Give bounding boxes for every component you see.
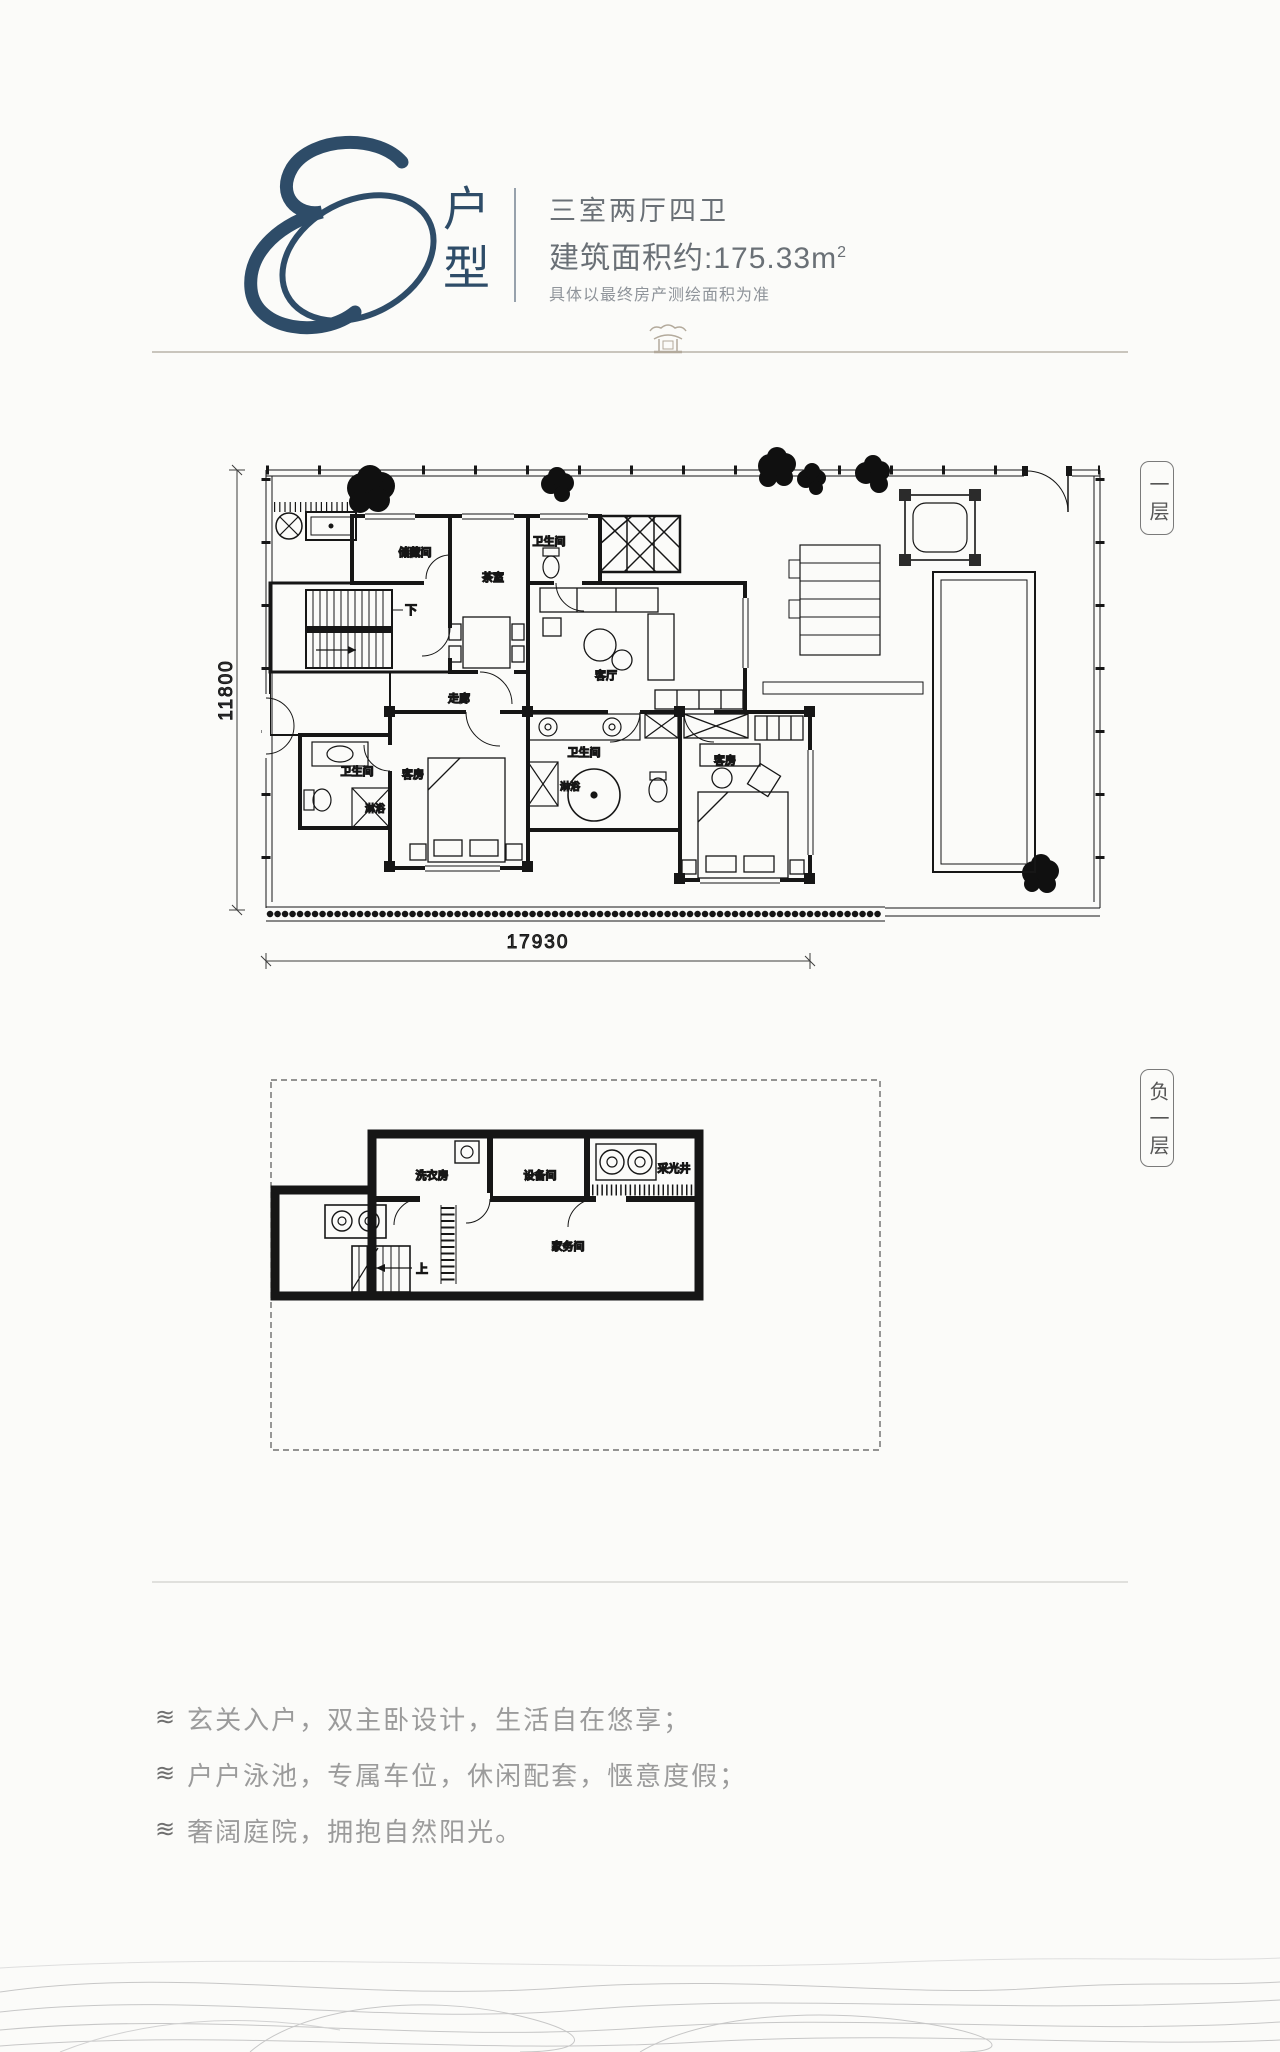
floor1-walls: [270, 516, 810, 880]
dim-width-label: 17930: [507, 932, 570, 953]
floor1-dining-set: [449, 617, 524, 668]
floor1-deck: [600, 516, 680, 572]
basement-plan: 洗衣房 设备间 采光井 家务间 上: [271, 1080, 880, 1450]
floor1-topleft-service: [274, 507, 356, 540]
room-label-bath-left: 卫生间: [341, 764, 374, 778]
feature-item: ≋ 户户泳池，专属车位，休闲配套，惬意度假；: [155, 1758, 747, 1790]
floor1-plan: 11800 17930 储藏间 茶室 卫生间 客厅 走廊 下 卫生间 淋浴 客房…: [216, 447, 1100, 969]
room-label-shower-master: 淋浴: [560, 780, 581, 793]
floor1-bath-left-fixtures: [304, 742, 390, 828]
room-label-guest-left: 客房: [401, 767, 424, 781]
type-label: 户型: [428, 184, 497, 316]
unit-layout-text: 三室两厅四卫: [549, 189, 729, 228]
dim-height-label: 11800: [216, 659, 237, 720]
floor1-master-bath-fixtures: [528, 714, 678, 821]
room-label-storage: 储藏间: [399, 545, 432, 559]
floor1-living-furniture: [540, 588, 743, 709]
floor1-bath-top-fixtures: [543, 548, 559, 578]
room-label-living: 客厅: [594, 668, 617, 682]
wave-bullet-icon: ≋: [155, 1706, 175, 1730]
room-label-corridor: 走廊: [447, 691, 470, 705]
area-superscript: 2: [837, 244, 847, 261]
room-label-up: 上: [416, 1261, 428, 1276]
room-label-lightwell: 采光井: [657, 1161, 691, 1175]
room-label-bath-top: 卫生间: [533, 534, 566, 548]
basement-tag: 负一层: [1140, 1069, 1174, 1167]
bottom-waves-decoration: [0, 1958, 1280, 2052]
feature-item: ≋ 奢阔庭院，拥抱自然阳光。: [155, 1814, 747, 1846]
area-text: 建筑面积约:175.33m2: [549, 233, 847, 277]
room-label-guest-right: 客房: [713, 753, 736, 767]
floor1-tag: 一层: [1140, 461, 1174, 535]
logo-monogram-e-icon: [251, 142, 456, 345]
floor1-pilasters: [384, 706, 815, 884]
floor1-pool: [763, 489, 1035, 872]
basement-laundry-fixtures: [455, 1141, 479, 1163]
disclaimer-text: 具体以最终房产测绘面积为准: [549, 281, 770, 305]
room-label-equipment: 设备间: [524, 1168, 557, 1182]
feature-text: 奢阔庭院，拥抱自然阳光。: [187, 1812, 523, 1849]
room-label-shower-left: 淋浴: [365, 802, 386, 815]
area-value: 建筑面积约:175.33m: [549, 242, 837, 275]
floor1-stairs: [306, 590, 403, 668]
feature-text: 户户泳池，专属车位，休闲配套，惬意度假；: [187, 1756, 747, 1793]
feature-item: ≋ 玄关入户，双主卧设计，生活自在悠享；: [155, 1702, 747, 1734]
room-label-tea: 茶室: [481, 570, 504, 584]
room-label-laundry: 洗衣房: [416, 1168, 449, 1182]
feature-list: ≋ 玄关入户，双主卧设计，生活自在悠享； ≋ 户户泳池，专属车位，休闲配套，惬意…: [155, 1702, 747, 1870]
room-label-down: 下: [405, 603, 417, 617]
wave-bullet-icon: ≋: [155, 1762, 175, 1786]
room-label-bath-master: 卫生间: [568, 745, 601, 759]
wave-bullet-icon: ≋: [155, 1818, 175, 1842]
feature-text: 玄关入户，双主卧设计，生活自在悠享；: [187, 1700, 691, 1737]
floor1-guest-left-furniture: [410, 758, 522, 862]
room-label-utility: 家务间: [552, 1239, 585, 1253]
header-vertical-divider: [514, 188, 516, 302]
floor1-guest-right-furniture: [682, 714, 804, 878]
basement-vanity: [325, 1205, 386, 1238]
gate-ornament-icon: [650, 325, 686, 352]
basement-walls: [275, 1134, 699, 1296]
